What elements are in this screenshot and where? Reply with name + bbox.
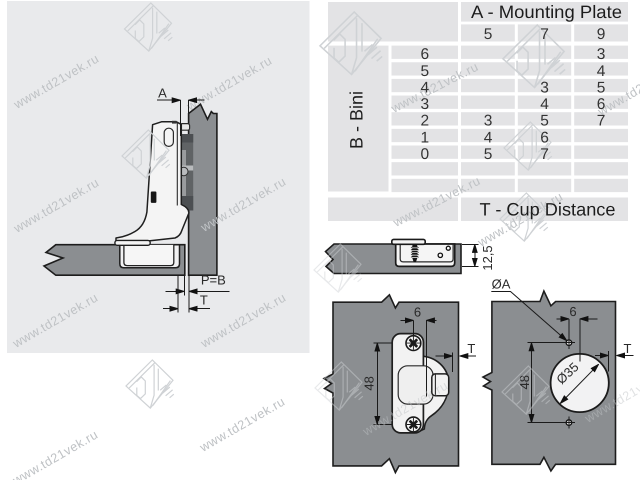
svg-text:A: A: [158, 86, 167, 101]
svg-text:A - Mounting Plate: A - Mounting Plate: [471, 2, 622, 22]
svg-text:3: 3: [420, 96, 429, 113]
svg-text:4: 4: [597, 63, 606, 80]
svg-text:3: 3: [484, 113, 493, 130]
svg-text:5: 5: [484, 26, 493, 43]
svg-text:T: T: [624, 341, 632, 356]
svg-text:T - Cup Distance: T - Cup Distance: [480, 200, 616, 220]
svg-text:T: T: [467, 341, 475, 356]
svg-text:3: 3: [597, 46, 606, 63]
svg-text:5: 5: [420, 63, 429, 80]
svg-text:6: 6: [597, 96, 606, 113]
svg-text:4: 4: [540, 96, 549, 113]
svg-text:5: 5: [597, 79, 606, 96]
svg-text:6: 6: [540, 129, 549, 146]
svg-text:T: T: [200, 293, 208, 308]
svg-text:7: 7: [540, 26, 549, 43]
svg-text:6: 6: [569, 304, 576, 319]
svg-text:6: 6: [420, 46, 429, 63]
svg-text:5: 5: [484, 146, 493, 163]
svg-text:48: 48: [361, 376, 376, 390]
svg-text:7: 7: [540, 146, 549, 163]
svg-text:9: 9: [597, 26, 606, 43]
svg-text:0: 0: [420, 146, 429, 163]
svg-text:3: 3: [540, 79, 549, 96]
svg-text:ØA: ØA: [492, 277, 511, 292]
svg-text:P=B: P=B: [201, 272, 226, 287]
svg-text:2: 2: [420, 113, 429, 130]
svg-text:4: 4: [484, 129, 493, 146]
svg-text:12,5: 12,5: [480, 245, 495, 270]
svg-text:5: 5: [540, 113, 549, 130]
svg-text:B - Bini: B - Bini: [347, 91, 367, 149]
svg-text:6: 6: [414, 304, 421, 319]
svg-text:7: 7: [597, 113, 606, 130]
svg-text:4: 4: [420, 79, 429, 96]
svg-text:1: 1: [420, 129, 429, 146]
